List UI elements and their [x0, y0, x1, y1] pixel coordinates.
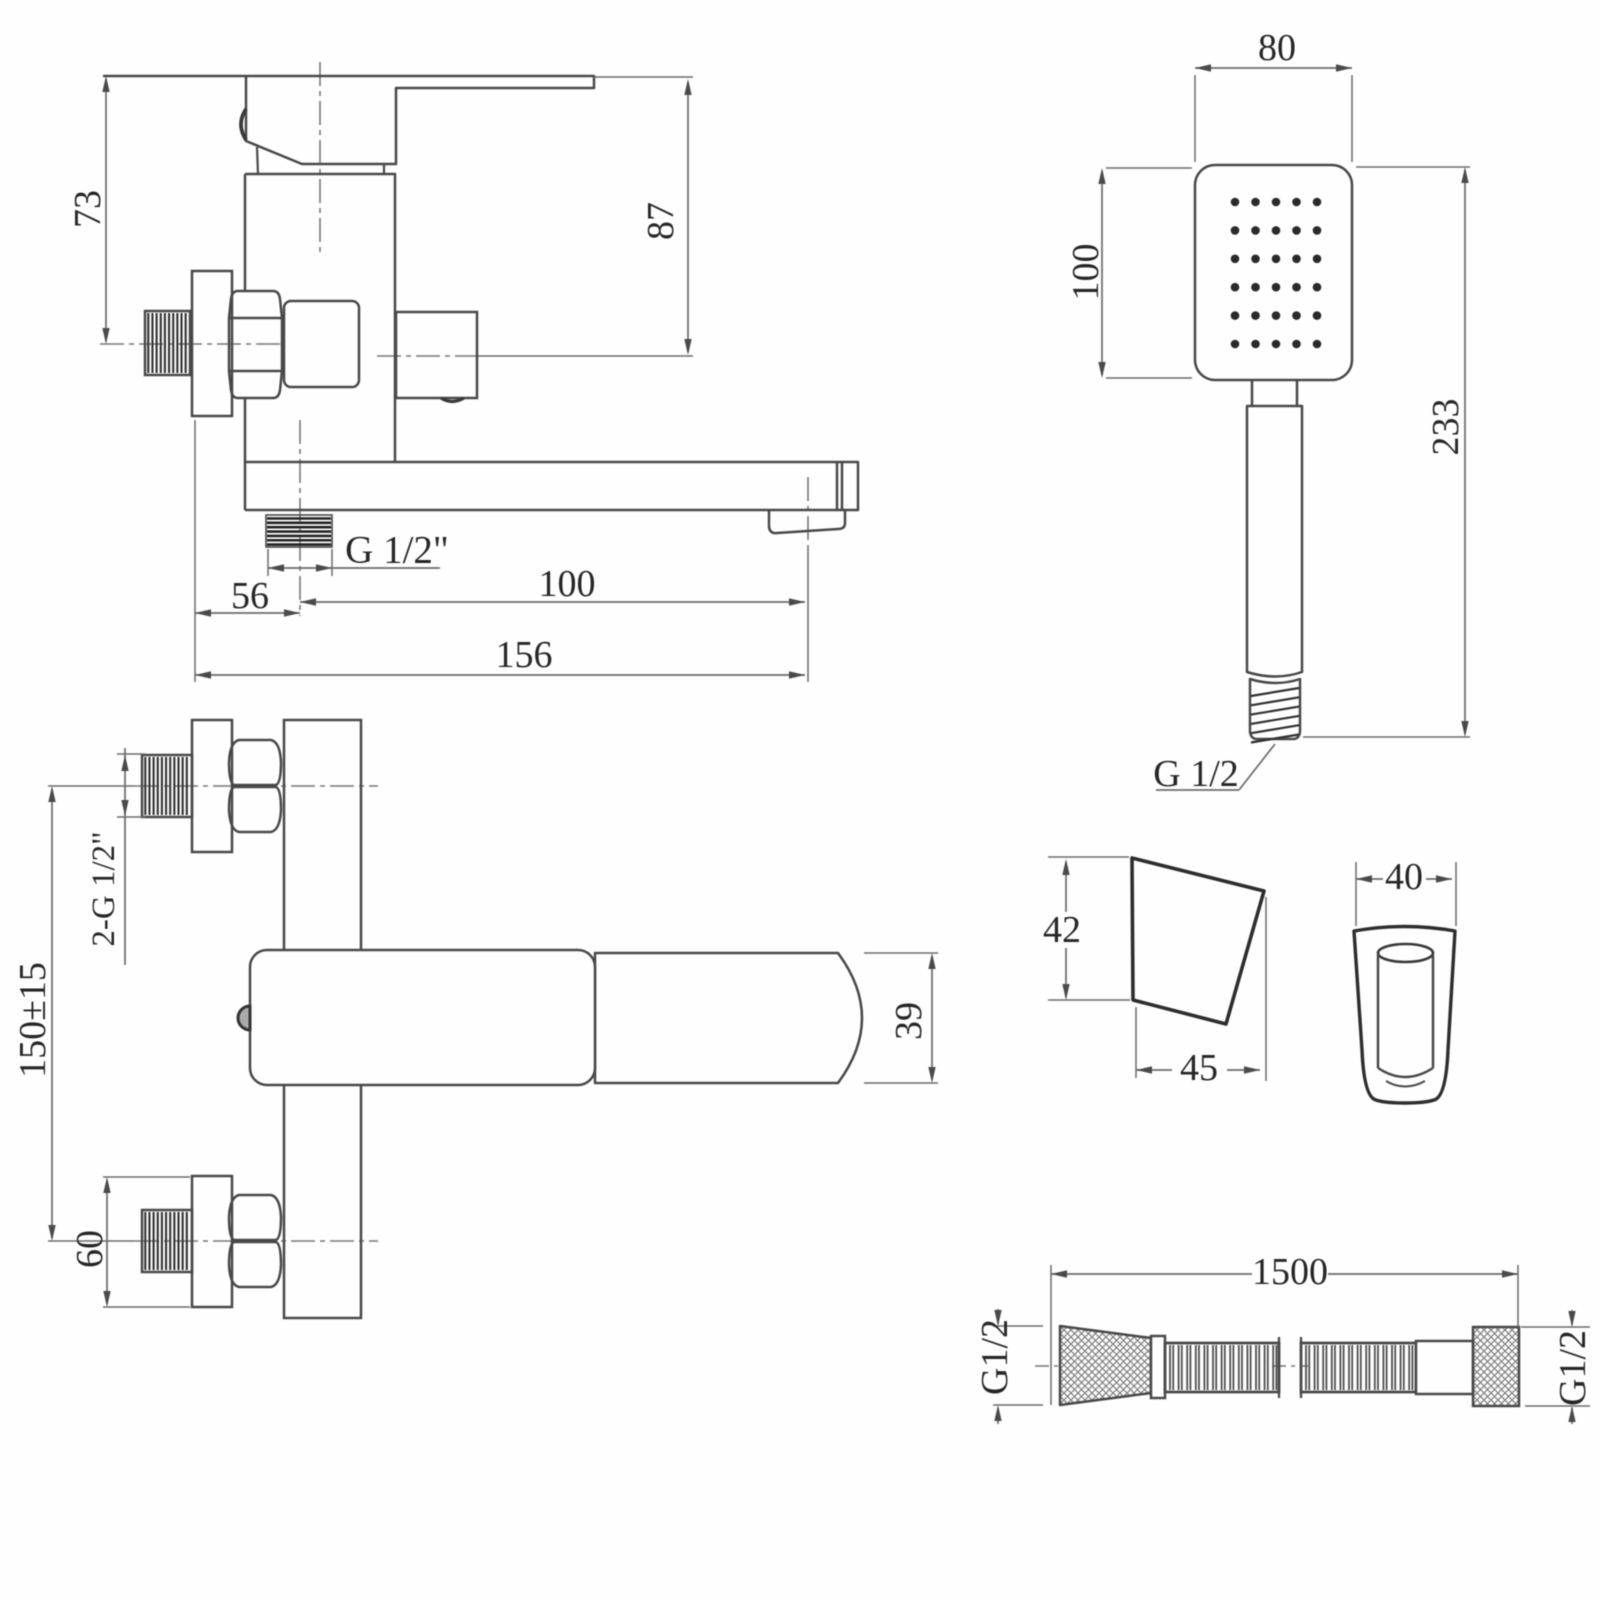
- svg-text:39: 39: [888, 1002, 930, 1040]
- svg-text:2-G 1/2": 2-G 1/2": [86, 831, 122, 946]
- svg-text:56: 56: [231, 575, 269, 617]
- svg-text:100: 100: [539, 563, 596, 605]
- svg-text:45: 45: [1180, 1047, 1218, 1089]
- svg-text:G1/2: G1/2: [974, 1319, 1016, 1395]
- svg-text:G1/2: G1/2: [1552, 1330, 1594, 1406]
- svg-text:G 1/2: G 1/2: [1153, 753, 1239, 795]
- svg-text:150±15: 150±15: [12, 962, 54, 1078]
- svg-text:1500: 1500: [1252, 1251, 1328, 1293]
- svg-text:100: 100: [1065, 244, 1107, 301]
- svg-text:233: 233: [1425, 399, 1467, 456]
- svg-text:G 1/2": G 1/2": [345, 529, 449, 572]
- svg-text:80: 80: [1258, 27, 1296, 69]
- svg-text:60: 60: [69, 1230, 111, 1268]
- svg-text:40: 40: [1385, 856, 1423, 898]
- svg-text:156: 156: [496, 634, 553, 676]
- svg-text:42: 42: [1043, 909, 1081, 951]
- svg-text:87: 87: [640, 202, 682, 240]
- svg-text:73: 73: [67, 190, 109, 228]
